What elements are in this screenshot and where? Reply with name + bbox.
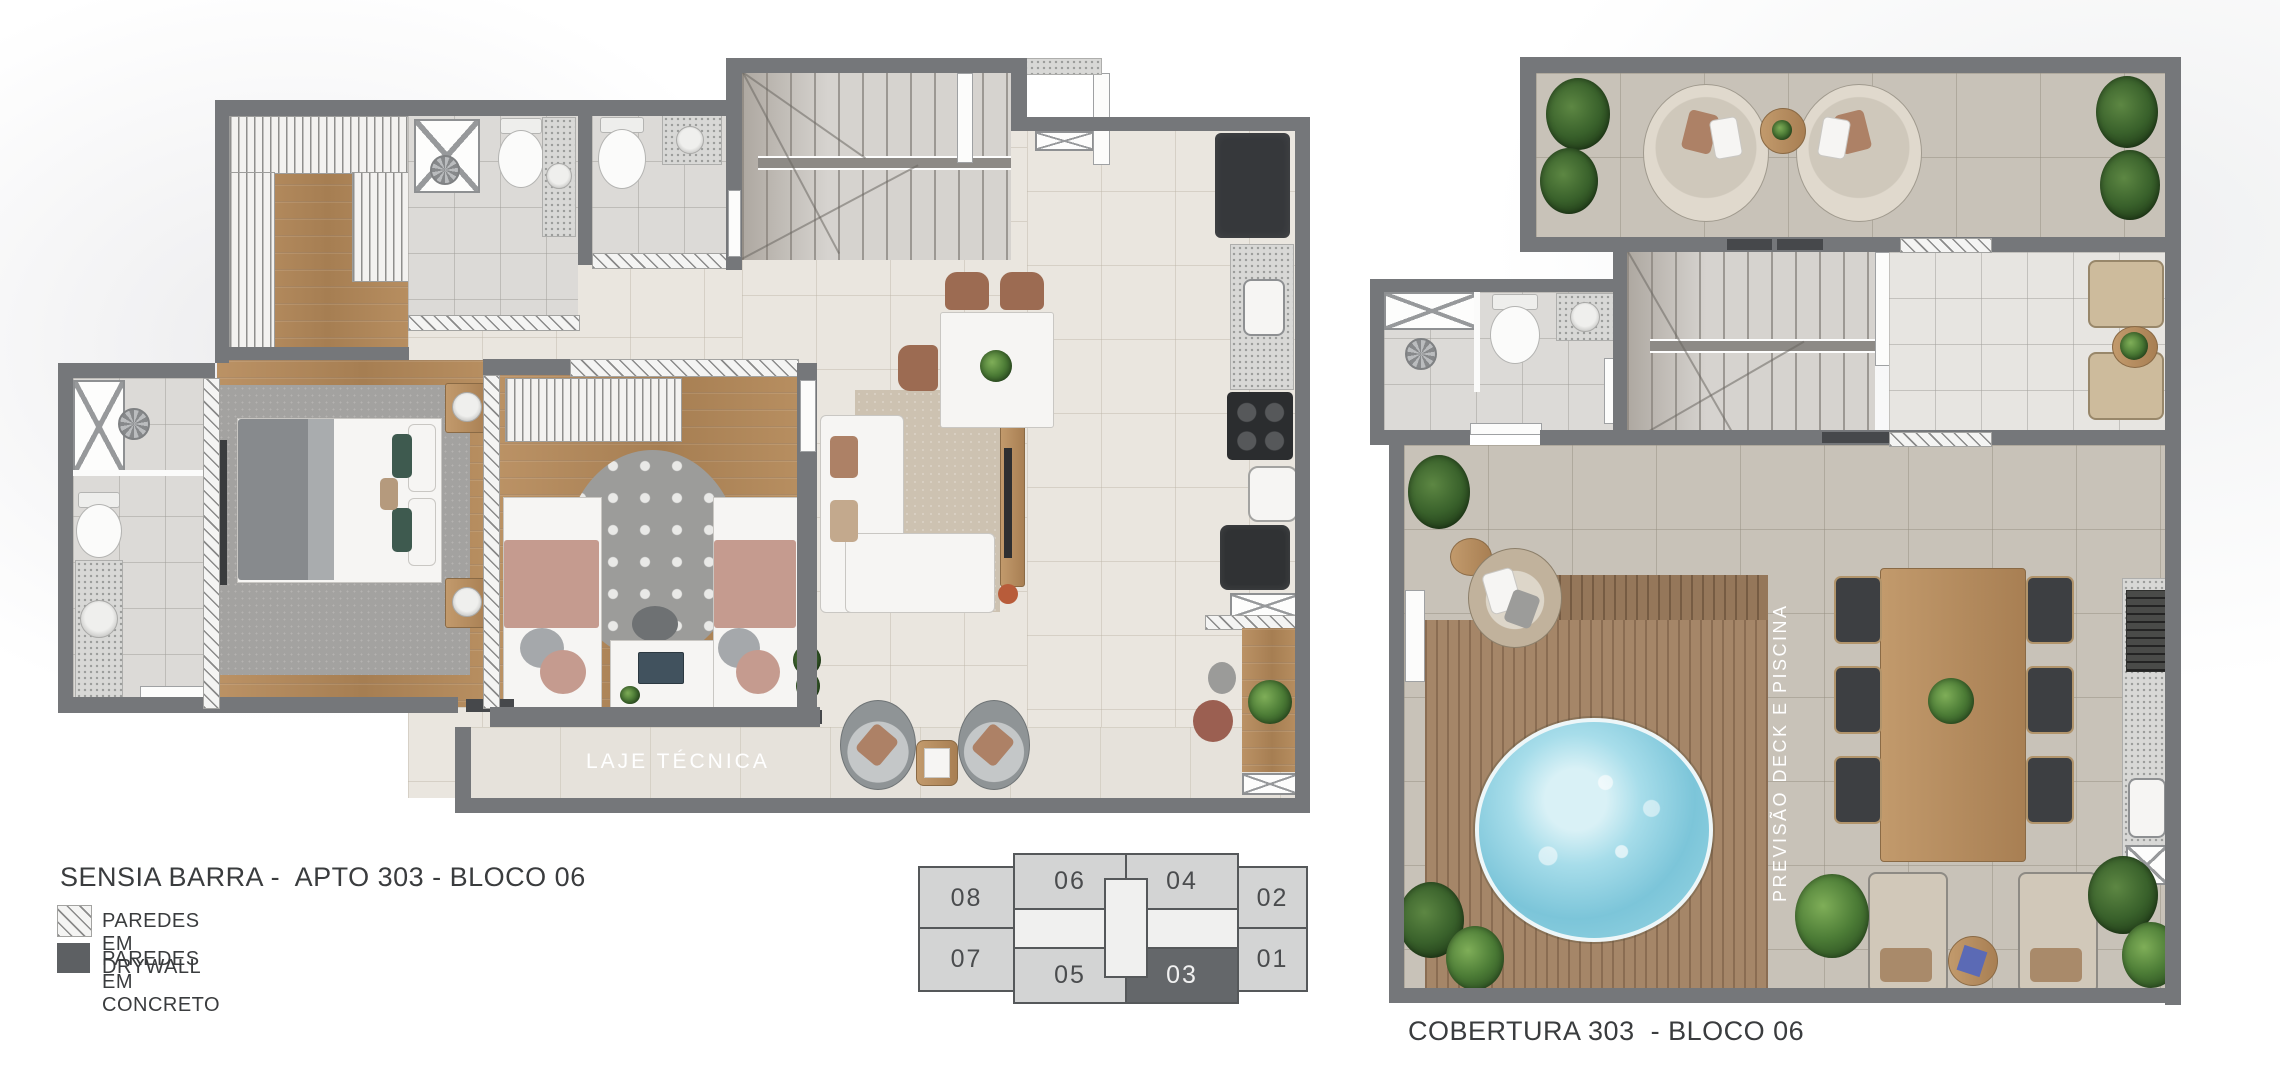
bed-cushion (736, 650, 780, 694)
wall (1520, 57, 1536, 252)
wall (58, 363, 73, 713)
dining-chair (898, 345, 938, 391)
plant (2100, 150, 2160, 220)
plant (1546, 78, 1610, 150)
table-plant (1772, 120, 1792, 140)
lounger-cushion (2030, 948, 2082, 982)
bed-cushion-green (392, 434, 412, 478)
toilet (598, 129, 646, 189)
washing-machine (1220, 525, 1290, 590)
bed-pillow (408, 424, 436, 492)
pouf-red (1193, 700, 1233, 742)
shower-head-icon (1405, 338, 1437, 370)
bed-cushion (380, 478, 398, 510)
door-threshold (1727, 239, 1772, 250)
door-leaf (800, 380, 816, 452)
deck-piscina-label: PREVISÃO DECK E PISCINA (1770, 612, 1791, 902)
plant (1795, 874, 1869, 958)
drywall-segment (1900, 238, 1992, 253)
wall (1520, 57, 2180, 73)
sofa-cushion (830, 500, 858, 542)
tv (1004, 448, 1012, 558)
sink-basin (676, 126, 704, 154)
bed-pillow (408, 498, 436, 566)
drywall-partition (483, 375, 500, 709)
wall (1027, 117, 1310, 131)
keyplan-unit-07: 07 (918, 927, 1015, 992)
laundry-tub (1248, 466, 1298, 522)
table-lamp (452, 587, 482, 617)
roof-dining-chair (1834, 576, 1882, 644)
plant (2120, 332, 2148, 360)
roof-dining-chair (1834, 666, 1882, 734)
cabinet (1242, 773, 1298, 795)
bed-blanket-pink (714, 540, 796, 628)
wall (726, 58, 1026, 73)
bed-cushion (540, 650, 586, 694)
drywall-segment (592, 253, 728, 269)
roof-dining-chair (1834, 756, 1882, 824)
stove-cooktop (1227, 392, 1293, 460)
keyplan: 08 06 04 02 07 05 03 01 (905, 845, 1315, 1015)
apartment-plan: LAJE TÉCNICA (0, 0, 1340, 830)
drywall-segment (1889, 432, 1992, 447)
roof-dining-chair (2026, 576, 2074, 644)
wall (578, 100, 592, 265)
keyplan-unit-01: 01 (1237, 927, 1308, 992)
roof-dining-chair (2026, 666, 2074, 734)
wall (215, 100, 742, 116)
legend-label: PAREDES EM CONCRETO (102, 948, 220, 1017)
toilet (76, 504, 122, 558)
pouf-gray (1208, 662, 1236, 694)
sofa-cushion (830, 436, 858, 478)
bed-blanket-fold (308, 419, 334, 580)
apartment-title: SENSIA BARRA - APTO 303 - BLOCO 06 (60, 862, 586, 893)
shower-head-icon (430, 155, 460, 185)
desk-chair (632, 606, 678, 642)
armchair-beige (2088, 260, 2164, 328)
wall (58, 363, 215, 378)
laptop (638, 652, 684, 684)
wall (455, 727, 471, 813)
sofa-chaise (845, 533, 995, 613)
closet-wardrobe-right (352, 172, 410, 282)
plant (1248, 680, 1292, 724)
drywall-segment (408, 315, 580, 331)
wall (58, 697, 458, 713)
door-threshold (1822, 432, 1889, 443)
keyplan-unit-02: 02 (1237, 866, 1308, 931)
wall (1389, 988, 2181, 1003)
toilet (1490, 306, 1540, 364)
dining-chair (945, 272, 989, 310)
wall (455, 798, 1310, 813)
door-threshold (1777, 239, 1823, 250)
pool (1475, 718, 1713, 942)
plant (1446, 926, 1504, 990)
wall (1011, 58, 1027, 131)
door-leaf (1470, 423, 1542, 435)
ac-unit (1035, 131, 1094, 151)
door-leaf (728, 190, 741, 257)
floorplan-sheet: LAJE TÉCNICA (0, 0, 2280, 1078)
shower-glass (73, 380, 125, 474)
shower-divider (73, 470, 203, 476)
shower-head-icon (118, 408, 150, 440)
roof-dining-chair (2026, 756, 2074, 824)
bbq-sink (2128, 778, 2166, 838)
stair-wall-edge (957, 73, 973, 163)
legend-swatch-concrete (57, 943, 90, 973)
wall (2165, 57, 2181, 1005)
bedroom2-wardrobe (505, 378, 682, 442)
table-lamp (452, 392, 482, 422)
bed-blanket (238, 419, 310, 580)
shower-divider (1474, 292, 1480, 392)
table-centerpiece (1928, 678, 1974, 724)
sink-basin (80, 600, 118, 638)
vase-flower (998, 584, 1018, 604)
round-lounge-chair (1796, 84, 1922, 222)
plant (2096, 76, 2158, 148)
wall (1389, 445, 1404, 1003)
stair-rail (758, 158, 1011, 168)
table-centerpiece (980, 350, 1012, 382)
desk-plant (620, 686, 640, 704)
wall-tv-panel (220, 440, 227, 585)
wall (215, 100, 229, 363)
fridge (1215, 133, 1290, 238)
side-table-tray (924, 748, 950, 778)
wall (1370, 279, 1627, 292)
bed-blanket-pink (504, 540, 599, 628)
closet-wardrobe-top (229, 116, 410, 174)
wall (229, 347, 409, 360)
wall (1613, 243, 1627, 445)
keyplan-unit-08: 08 (918, 866, 1015, 931)
roof-plan: PREVISÃO DECK E PISCINA (1360, 0, 2280, 1060)
plant (1408, 455, 1470, 529)
wall (490, 707, 820, 727)
wall (1295, 117, 1310, 813)
laje-tecnica-label: LAJE TÉCNICA (586, 750, 770, 774)
kitchen-sink (1243, 279, 1285, 336)
roof-title: COBERTURA 303 - BLOCO 06 (1408, 1016, 1804, 1047)
sink-basin (1570, 302, 1600, 332)
wall-granite-segment (1016, 58, 1102, 75)
dining-chair (1000, 272, 1044, 310)
plant (1540, 148, 1598, 214)
keyplan-core (1104, 878, 1148, 978)
wall (1536, 237, 2165, 252)
wall (483, 359, 570, 375)
wall (1370, 279, 1384, 445)
bed-cushion-green (392, 508, 412, 552)
drywall-partition (203, 378, 220, 709)
lounger-cushion (1880, 948, 1932, 982)
closet-wardrobe-left (229, 172, 275, 350)
wall (1370, 430, 1470, 445)
grill (2126, 590, 2166, 672)
deck-door (1405, 590, 1425, 682)
toilet (498, 130, 544, 188)
drywall-segment (570, 359, 799, 377)
shower-glass (1384, 292, 1480, 330)
sink-basin (546, 163, 572, 189)
wood-deck-step (1548, 575, 1768, 622)
legend-swatch-drywall (57, 905, 92, 937)
